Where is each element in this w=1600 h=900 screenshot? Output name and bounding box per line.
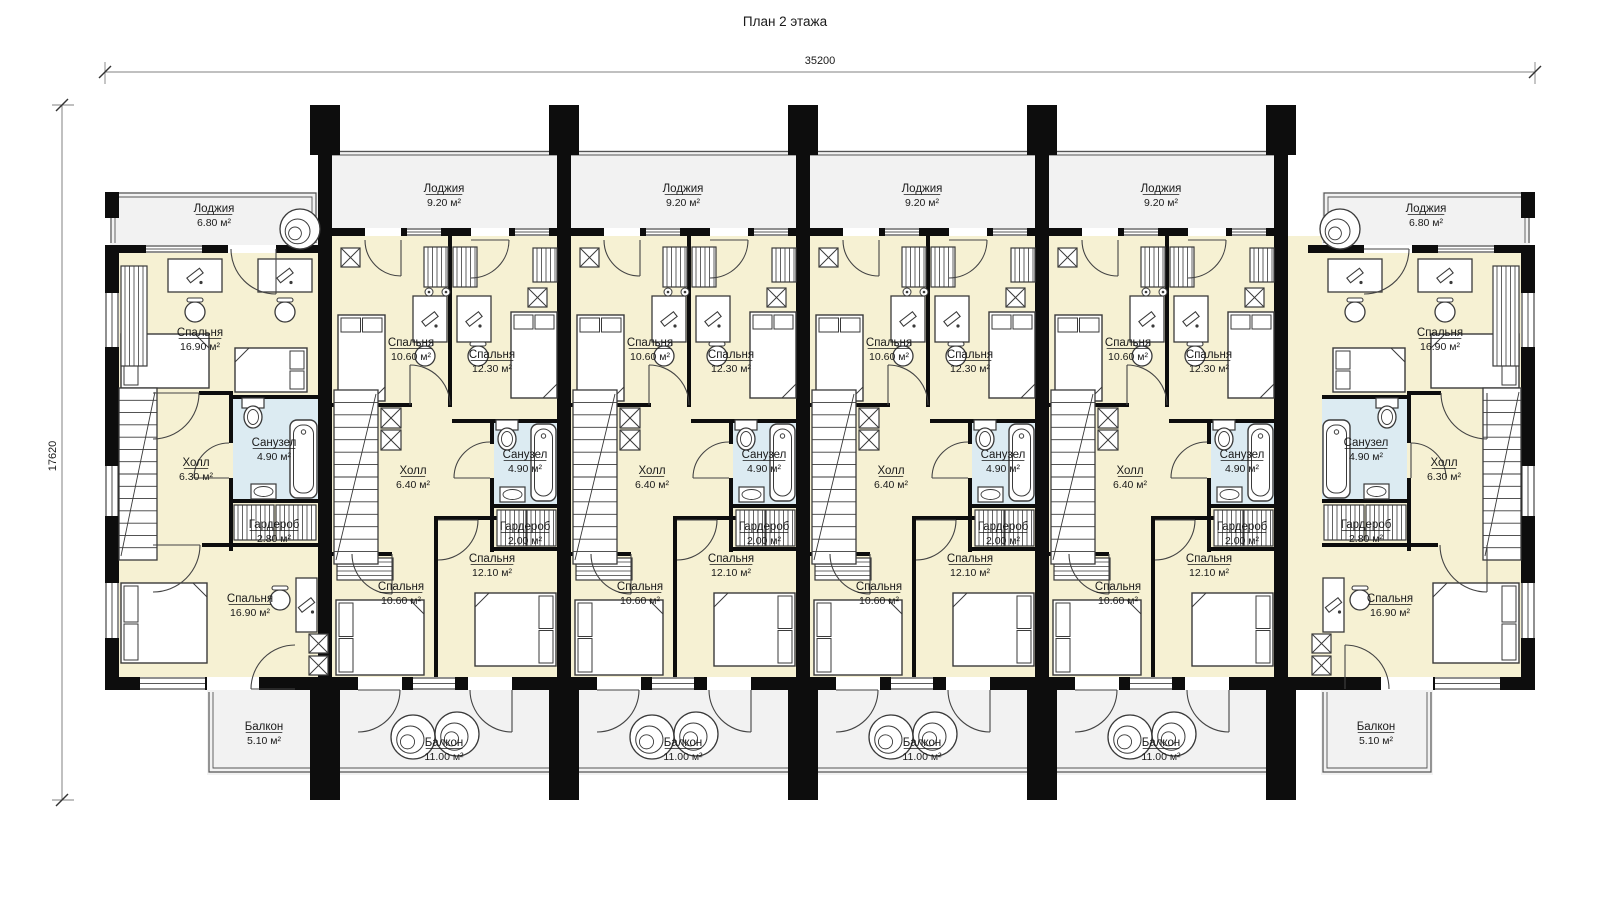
desk-dot: [289, 281, 292, 284]
door-opening: [1075, 677, 1119, 690]
chair-back: [1352, 586, 1368, 590]
pillow-icon: [580, 318, 600, 332]
room-area-label: 2.00 м²: [508, 535, 543, 547]
partition-wall: [1211, 547, 1274, 551]
partition-wall: [1151, 516, 1155, 677]
room-name-label: Санузел: [503, 449, 548, 461]
partition-wall: [1207, 419, 1211, 444]
room-name-label: Спальня: [708, 553, 754, 565]
chair-back: [277, 298, 293, 302]
pillow-icon: [539, 596, 553, 629]
partition-wall: [434, 516, 438, 677]
room-name-label: Гардероб: [1341, 519, 1392, 531]
pillow-icon: [774, 315, 793, 329]
pillow-icon: [1502, 586, 1516, 622]
room-name-label: Санузел: [742, 449, 787, 461]
room-name-label: Балкон: [1357, 721, 1396, 733]
partition-wall: [229, 478, 233, 551]
door-opening: [1188, 228, 1226, 236]
desk-dot: [1449, 281, 1452, 284]
partition-wall: [199, 391, 233, 395]
room-area-label: 6.80 м²: [197, 217, 232, 229]
room-area-label: 12.30 м²: [1189, 363, 1229, 375]
party-wall-cap-bottom: [1266, 683, 1296, 800]
room-area-label: 12.10 м²: [711, 567, 751, 579]
outlet-dot: [923, 291, 926, 294]
bathtub-inner: [1327, 425, 1347, 493]
room-area-label: 10.60 м²: [1098, 595, 1138, 607]
pillow-icon: [1058, 318, 1078, 332]
room-area-label: 2.80 м²: [257, 533, 292, 545]
outlet-dot: [906, 291, 909, 294]
room-area-label: 12.30 м²: [472, 363, 512, 375]
partition-wall: [968, 419, 972, 444]
room-name-label: Гардероб: [500, 521, 551, 533]
chair-back: [1187, 342, 1203, 346]
outlet-dot: [1145, 291, 1148, 294]
room-area-label: 9.20 м²: [666, 197, 701, 209]
door-opening: [1082, 228, 1118, 236]
room-area-label: 4.90 м²: [747, 463, 782, 475]
desk-dot: [717, 324, 720, 327]
room-area-label: 12.10 м²: [472, 567, 512, 579]
room-name-label: Санузел: [252, 437, 297, 449]
door-opening: [707, 677, 751, 690]
party-wall-cap-bottom: [1027, 683, 1057, 800]
outlet-dot: [1162, 291, 1165, 294]
room-name-label: Санузел: [981, 449, 1026, 461]
pillow-icon: [539, 631, 553, 664]
chair-back: [1347, 298, 1363, 302]
room-area-label: 12.30 м²: [711, 363, 751, 375]
door-opening: [358, 677, 402, 690]
pillow-icon: [1256, 596, 1270, 629]
chair-icon: [275, 302, 295, 322]
room-area-label: 6.30 м²: [1427, 471, 1462, 483]
pillow-icon: [578, 603, 592, 637]
floor-plan-page: Лоджия6.80 м²Спальня16.90 м²Холл6.30 м²С…: [0, 0, 1600, 900]
room-name-label: Спальня: [947, 349, 993, 361]
room-area-label: 6.40 м²: [635, 479, 670, 491]
partition-wall: [673, 516, 677, 677]
pillow-icon: [290, 351, 304, 369]
partition-wall: [448, 236, 452, 407]
partition-wall: [1407, 478, 1411, 551]
room-name-label: Балкон: [245, 721, 284, 733]
room-name-label: Спальня: [1105, 337, 1151, 349]
pillow-icon: [341, 318, 361, 332]
room-name-label: Холл: [638, 465, 665, 477]
room-area-label: 11.00 м²: [902, 751, 942, 763]
desk-dot: [956, 324, 959, 327]
outlet-dot: [667, 291, 670, 294]
party-wall-cap-top: [310, 105, 340, 155]
room-name-label: Санузел: [1344, 437, 1389, 449]
partition-wall: [1211, 504, 1274, 508]
room-area-label: 5.10 м²: [247, 735, 282, 747]
room-area-label: 10.60 м²: [859, 595, 899, 607]
party-wall-cap-top: [1027, 105, 1057, 155]
chair-icon: [185, 302, 205, 322]
door-opening: [471, 228, 509, 236]
door-opening: [228, 245, 276, 253]
partition-wall: [229, 499, 318, 503]
partition-wall: [494, 504, 557, 508]
pillow-icon: [514, 315, 533, 329]
partition-wall: [912, 516, 976, 520]
desk-dot: [1195, 324, 1198, 327]
partition-wall: [733, 547, 796, 551]
party-wall-cap-top: [1266, 105, 1296, 155]
room-area-label: 9.20 м²: [427, 197, 462, 209]
pillow-icon: [602, 318, 622, 332]
room-area-label: 10.60 м²: [620, 595, 660, 607]
room-name-label: Спальня: [856, 581, 902, 593]
room-name-label: Гардероб: [978, 521, 1029, 533]
room-name-label: Спальня: [617, 581, 663, 593]
partition-wall: [494, 547, 557, 551]
room-area-label: 2.00 м²: [986, 535, 1021, 547]
page-title: План 2 этажа: [743, 14, 828, 29]
room-name-label: Холл: [877, 465, 904, 477]
floor-plan-canvas: Лоджия6.80 м²Спальня16.90 м²Холл6.30 м²С…: [0, 0, 1600, 900]
door-opening: [946, 677, 990, 690]
desk-dot: [311, 610, 314, 613]
pillow-icon: [1017, 631, 1031, 664]
room-area-label: 10.60 м²: [869, 351, 909, 363]
room-name-label: Спальня: [378, 581, 424, 593]
chair-back: [470, 342, 486, 346]
pillow-icon: [841, 318, 861, 332]
chair-back: [187, 298, 203, 302]
room-area-label: 11.00 м²: [1141, 751, 1181, 763]
pillow-icon: [1502, 624, 1516, 660]
partition-wall: [202, 543, 229, 547]
room-name-label: Лоджия: [663, 183, 704, 195]
room-name-label: Санузел: [1220, 449, 1265, 461]
partition-wall: [434, 516, 498, 520]
party-wall-cap-bottom: [549, 683, 579, 800]
loggia-pillar: [105, 192, 119, 218]
room-name-label: Лоджия: [194, 203, 235, 215]
pillow-icon: [363, 318, 383, 332]
pillow-icon: [1256, 631, 1270, 664]
room-name-label: Холл: [182, 457, 209, 469]
room-name-label: Спальня: [1417, 327, 1463, 339]
door-opening: [468, 677, 512, 690]
room-name-label: Балкон: [1142, 737, 1181, 749]
chair-icon: [1435, 302, 1455, 322]
chair-back: [1437, 298, 1453, 302]
room-area-label: 12.30 м²: [950, 363, 990, 375]
room-name-label: Спальня: [177, 327, 223, 339]
room-name-label: Гардероб: [1217, 521, 1268, 533]
pillow-icon: [535, 315, 554, 329]
room-area-label: 4.90 м²: [1349, 451, 1384, 463]
room-name-label: Спальня: [627, 337, 673, 349]
pillow-icon: [778, 631, 792, 664]
room-area-label: 4.90 м²: [986, 463, 1021, 475]
room-area-label: 2.00 м²: [747, 535, 782, 547]
dimension-width-label: 35200: [805, 55, 836, 67]
room-area-label: 10.60 м²: [381, 595, 421, 607]
room-area-label: 12.10 м²: [1189, 567, 1229, 579]
pillow-icon: [1080, 318, 1100, 332]
partition-wall: [1407, 391, 1441, 395]
pillow-icon: [290, 371, 304, 389]
door-opening: [1185, 677, 1229, 690]
room-name-label: Спальня: [1186, 553, 1232, 565]
room-name-label: Спальня: [1186, 349, 1232, 361]
partition-wall: [673, 516, 737, 520]
room-area-label: 6.40 м²: [396, 479, 431, 491]
pillow-icon: [819, 318, 839, 332]
room-area-label: 4.90 м²: [508, 463, 543, 475]
room-area-label: 10.60 м²: [1108, 351, 1148, 363]
pillow-icon: [124, 624, 138, 660]
room-name-label: Спальня: [1367, 593, 1413, 605]
room-name-label: Спальня: [708, 349, 754, 361]
outlet-dot: [684, 291, 687, 294]
pillow-icon: [1056, 603, 1070, 637]
outlet-dot: [445, 291, 448, 294]
room-name-label: Лоджия: [424, 183, 465, 195]
partition-wall: [912, 516, 916, 677]
pillow-icon: [992, 315, 1011, 329]
door-opening: [710, 228, 748, 236]
room-name-label: Балкон: [903, 737, 942, 749]
room-name-label: Спальня: [1095, 581, 1141, 593]
room-area-label: 16.90 м²: [180, 341, 220, 353]
dimension-height-label: 17620: [47, 441, 59, 472]
pillow-icon: [1013, 315, 1032, 329]
room-name-label: Спальня: [947, 553, 993, 565]
room-area-label: 9.20 м²: [905, 197, 940, 209]
pillow-icon: [1252, 315, 1271, 329]
bottom-wall: [105, 677, 1535, 690]
pillow-icon: [1231, 315, 1250, 329]
room-area-label: 2.00 м²: [1225, 535, 1260, 547]
room-name-label: Гардероб: [739, 521, 790, 533]
partition-wall: [733, 504, 796, 508]
bathtub-inner: [294, 425, 314, 493]
chair-icon: [1345, 302, 1365, 322]
pillow-icon: [124, 586, 138, 622]
room-area-label: 10.60 м²: [630, 351, 670, 363]
pillow-icon: [578, 639, 592, 673]
room-name-label: Спальня: [866, 337, 912, 349]
room-area-label: 16.90 м²: [230, 607, 270, 619]
room-name-label: Спальня: [388, 337, 434, 349]
desk-dot: [1359, 281, 1362, 284]
pillow-icon: [1336, 351, 1350, 369]
party-wall-cap-bottom: [788, 683, 818, 800]
partition-wall: [1207, 478, 1211, 552]
room-name-label: Холл: [1430, 457, 1457, 469]
room-area-label: 6.40 м²: [1113, 479, 1148, 491]
pillow-icon: [817, 639, 831, 673]
chair-back: [709, 342, 725, 346]
chair-back: [948, 342, 964, 346]
partition-wall: [729, 419, 733, 444]
partition-wall: [1411, 543, 1438, 547]
door-opening: [949, 228, 987, 236]
door-opening: [843, 228, 879, 236]
chair-back: [272, 586, 288, 590]
outlet-dot: [428, 291, 431, 294]
room-area-label: 10.60 м²: [391, 351, 431, 363]
desk-dot: [1338, 610, 1341, 613]
desk-dot: [434, 324, 437, 327]
room-area-label: 6.40 м²: [874, 479, 909, 491]
room-area-label: 11.00 м²: [424, 751, 464, 763]
room-area-label: 2.80 м²: [1349, 533, 1384, 545]
party-wall-cap-bottom: [310, 683, 340, 800]
door-opening: [365, 228, 401, 236]
room-area-label: 6.80 м²: [1409, 217, 1444, 229]
room-area-label: 11.00 м²: [663, 751, 703, 763]
desk-dot: [478, 324, 481, 327]
room-name-label: Балкон: [425, 737, 464, 749]
room-area-label: 16.90 м²: [1370, 607, 1410, 619]
room-name-label: Холл: [1116, 465, 1143, 477]
room-name-label: Лоджия: [902, 183, 943, 195]
room-area-label: 4.90 м²: [1225, 463, 1260, 475]
partition-wall: [490, 478, 494, 552]
partition-wall: [729, 478, 733, 552]
partition-wall: [490, 419, 494, 444]
door-opening: [597, 677, 641, 690]
room-name-label: Спальня: [469, 553, 515, 565]
room-area-label: 16.90 м²: [1420, 341, 1460, 353]
partition-wall: [972, 547, 1035, 551]
pillow-icon: [778, 596, 792, 629]
desk-dot: [1151, 324, 1154, 327]
desk-dot: [199, 281, 202, 284]
party-wall-cap-top: [549, 105, 579, 155]
pillow-icon: [817, 603, 831, 637]
loggia-pillar: [1521, 192, 1535, 218]
room-area-label: 12.10 м²: [950, 567, 990, 579]
room-area-label: 6.30 м²: [179, 471, 214, 483]
room-name-label: Холл: [399, 465, 426, 477]
door-opening: [604, 228, 640, 236]
room-name-label: Лоджия: [1406, 203, 1447, 215]
partition-wall: [968, 478, 972, 552]
pillow-icon: [339, 603, 353, 637]
room-area-label: 9.20 м²: [1144, 197, 1179, 209]
room-name-label: Спальня: [469, 349, 515, 361]
pillow-icon: [339, 639, 353, 673]
room-name-label: Гардероб: [249, 519, 300, 531]
room-name-label: Балкон: [664, 737, 703, 749]
party-wall-cap-top: [788, 105, 818, 155]
desk-dot: [912, 324, 915, 327]
pillow-icon: [1056, 639, 1070, 673]
room-name-label: Лоджия: [1141, 183, 1182, 195]
pillow-icon: [1017, 596, 1031, 629]
partition-wall: [1151, 516, 1215, 520]
room-name-label: Спальня: [227, 593, 273, 605]
partition-wall: [1322, 499, 1411, 503]
door-opening: [836, 677, 880, 690]
room-area-label: 4.90 м²: [257, 451, 292, 463]
partition-wall: [972, 504, 1035, 508]
pillow-icon: [1336, 371, 1350, 389]
room-area-label: 5.10 м²: [1359, 735, 1394, 747]
pillow-icon: [753, 315, 772, 329]
desk-dot: [673, 324, 676, 327]
